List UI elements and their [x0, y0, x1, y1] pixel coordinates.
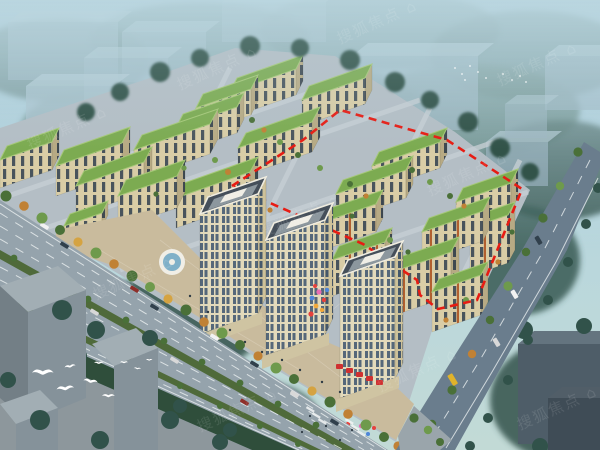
- aerial-rendering-canvas: 搜狐焦点 ⌂: [0, 0, 600, 450]
- rendering-frame: 搜狐焦点 ⌂: [0, 0, 600, 450]
